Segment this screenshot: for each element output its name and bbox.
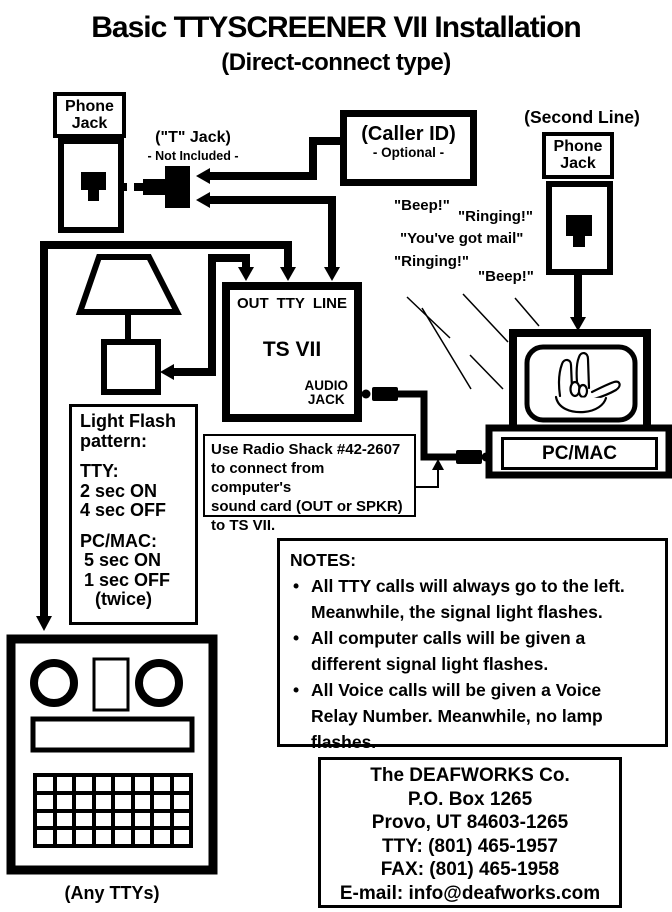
sound-ringing-1: "Ringing!": [458, 208, 533, 225]
tty-key: [135, 813, 151, 827]
port-tty-label: TTY: [277, 295, 305, 312]
page-subtitle: (Direct-connect type): [0, 49, 672, 77]
page-title: Basic TTYSCREENER VII Installation: [0, 11, 672, 45]
t-jack-label: ("T" Jack): [128, 129, 258, 147]
tty-key: [115, 795, 131, 809]
installation-diagram: Basic TTYSCREENER VII Installation (Dire…: [0, 0, 672, 912]
tty-key: [135, 830, 151, 844]
audio-plug-right-icon: [456, 450, 491, 464]
note-item: All computer calls will be given a diffe…: [290, 625, 659, 677]
tty-key: [96, 777, 112, 791]
wall-jack-left-icon: [61, 141, 121, 230]
light-flash-pc-twice: (twice): [80, 590, 195, 610]
note-item: All TTY calls will always go to the left…: [290, 573, 659, 625]
light-flash-tty-on: 2 sec ON: [80, 482, 195, 502]
tty-key: [154, 777, 170, 791]
tty-key: [37, 813, 53, 827]
tty-key: [115, 813, 131, 827]
second-line-label: (Second Line): [500, 107, 664, 128]
light-flash-box: Light Flash pattern: TTY: 2 sec ON 4 sec…: [69, 404, 198, 625]
contact-fax: FAX: (801) 465-1958: [321, 858, 619, 882]
sound-beep-1: "Beep!": [394, 197, 450, 214]
tty-key: [57, 813, 73, 827]
contact-tty: TTY: (801) 465-1957: [321, 835, 619, 859]
tty-key: [57, 830, 73, 844]
light-flash-tty-label: TTY:: [80, 462, 195, 482]
notes-box: NOTES: All TTY calls will always go to t…: [277, 538, 668, 747]
tty-keyboard: [33, 773, 193, 848]
light-flash-pc-on: 5 sec ON: [80, 551, 195, 571]
tty-key: [174, 777, 190, 791]
tty-key: [115, 777, 131, 791]
monitor-icon: [513, 333, 647, 430]
phone-jack-left-label: Phone Jack: [53, 92, 126, 138]
tty-key: [96, 813, 112, 827]
note-item: All Voice calls will be given a Voice Re…: [290, 677, 659, 755]
contact-email: E-mail: info@deafworks.com: [321, 882, 619, 906]
radio-shack-pointer: [413, 459, 444, 487]
audio-plug-left-icon: [362, 387, 399, 401]
tty-key: [135, 777, 151, 791]
tty-key: [76, 830, 92, 844]
contact-po-box: P.O. Box 1265: [321, 788, 619, 812]
tty-key: [154, 795, 170, 809]
tty-key: [154, 813, 170, 827]
audio-jack-label: AUDIO JACK: [305, 379, 349, 407]
sound-ringing-2: "Ringing!": [394, 253, 469, 270]
light-flash-pc-label: PC/MAC:: [80, 532, 195, 552]
caller-id-label: (Caller ID): [347, 123, 470, 145]
ts-vii-box: OUT TTY LINE TS VII AUDIO JACK: [222, 282, 362, 422]
light-flash-heading: Light Flash pattern:: [80, 412, 195, 451]
tty-key: [76, 795, 92, 809]
tty-key: [57, 795, 73, 809]
wall-jack-right-icon: [549, 184, 610, 272]
tty-key: [37, 777, 53, 791]
ts-vii-name: TS VII: [230, 338, 354, 362]
any-ttys-caption: (Any TTYs): [32, 883, 192, 904]
tty-key: [135, 795, 151, 809]
tty-key: [76, 813, 92, 827]
pc-mac-label: PC/MAC: [501, 437, 658, 470]
tty-key: [115, 830, 131, 844]
light-flash-pc-off: 1 sec OFF: [80, 571, 195, 591]
sound-beep-2: "Beep!": [478, 268, 534, 285]
light-flash-tty-off: 4 sec OFF: [80, 501, 195, 521]
notes-heading: NOTES:: [290, 547, 659, 573]
contact-city: Provo, UT 84603-1265: [321, 811, 619, 835]
tty-key: [174, 813, 190, 827]
tty-key: [174, 830, 190, 844]
tty-key: [57, 777, 73, 791]
tty-key: [37, 830, 53, 844]
t-jack-adapter-icon: [143, 166, 190, 208]
tty-key: [96, 795, 112, 809]
t-jack-note: - Not Included -: [123, 149, 263, 163]
contact-box: The DEAFWORKS Co. P.O. Box 1265 Provo, U…: [318, 757, 622, 908]
port-out-label: OUT: [237, 295, 269, 312]
port-line-label: LINE: [313, 295, 347, 312]
phone-jack-right-label: Phone Jack: [542, 132, 614, 179]
tty-key: [154, 830, 170, 844]
caller-id-box: (Caller ID) - Optional -: [340, 110, 477, 186]
radio-shack-note: Use Radio Shack #42-2607 to connect from…: [203, 434, 416, 517]
sound-youve-got-mail: "You've got mail": [400, 230, 523, 247]
tty-key: [96, 830, 112, 844]
contact-company: The DEAFWORKS Co.: [321, 764, 619, 788]
tty-key: [37, 795, 53, 809]
caller-id-note: - Optional -: [347, 145, 470, 161]
tty-key: [174, 795, 190, 809]
tty-key: [76, 777, 92, 791]
